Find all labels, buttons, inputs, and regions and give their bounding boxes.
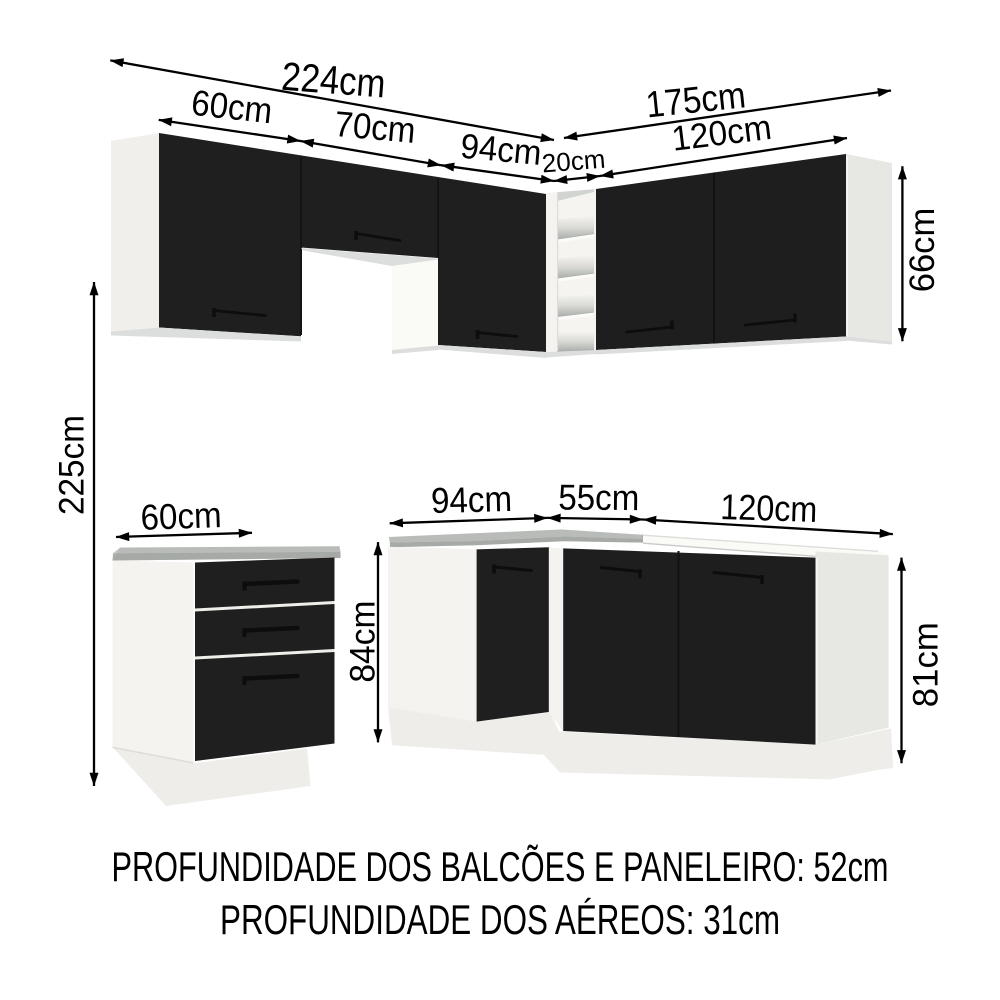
svg-text:94cm: 94cm xyxy=(459,127,543,173)
svg-text:225cm: 225cm xyxy=(53,415,92,515)
svg-text:20cm: 20cm xyxy=(541,144,607,179)
svg-text:66cm: 66cm xyxy=(903,208,942,293)
svg-text:PROFUNDIDADE DOS AÉREOS: 31cm: PROFUNDIDADE DOS AÉREOS: 31cm xyxy=(220,896,780,943)
svg-text:81cm: 81cm xyxy=(907,622,946,707)
svg-text:224cm: 224cm xyxy=(280,55,387,107)
svg-text:94cm: 94cm xyxy=(430,478,512,521)
svg-text:70cm: 70cm xyxy=(333,103,417,151)
svg-text:84cm: 84cm xyxy=(344,601,383,683)
svg-text:PROFUNDIDADE DOS BALCÕES E PAN: PROFUNDIDADE DOS BALCÕES E PANELEIRO: 52… xyxy=(112,843,889,890)
svg-text:60cm: 60cm xyxy=(140,494,222,538)
svg-text:55cm: 55cm xyxy=(558,476,639,518)
svg-text:120cm: 120cm xyxy=(720,486,818,530)
